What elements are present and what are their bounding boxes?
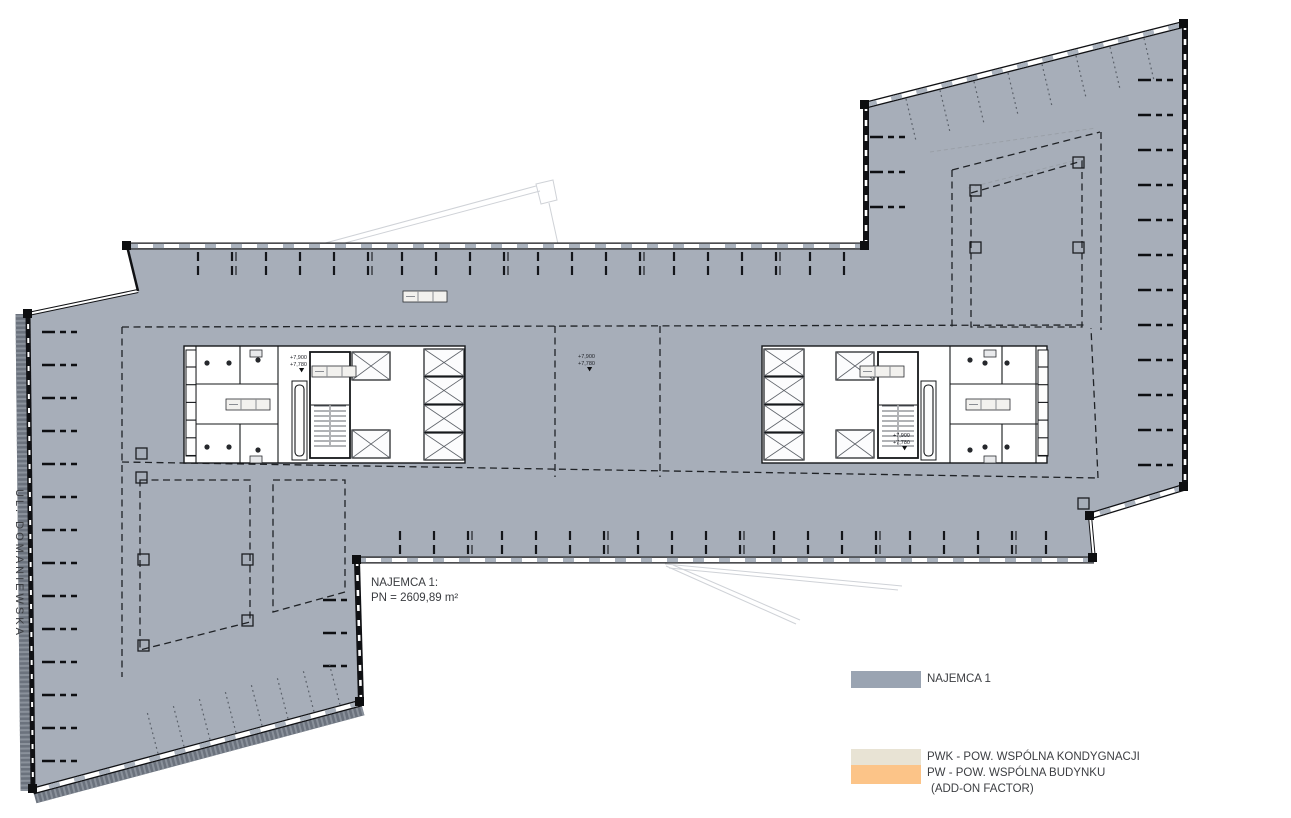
level-upper: +7,900 [893, 433, 910, 439]
sink [250, 456, 262, 463]
wall-cap [1085, 511, 1094, 520]
floor-plan-page: +7,900 +7,780 +7,900 +7,780 +7,900 +7,78… [0, 0, 1291, 818]
sink [984, 350, 996, 357]
level-lower: +7,780 [290, 362, 307, 368]
level-upper: +7,900 [578, 354, 595, 360]
level-lower: +7,780 [578, 361, 595, 367]
wc-fixture [967, 357, 972, 362]
wall-cap [1179, 482, 1188, 491]
wall-cap [352, 555, 361, 564]
legend-label-line2: (ADD-ON FACTOR) [927, 781, 1105, 797]
wc-fixture [255, 357, 260, 362]
wc-fixture [982, 444, 987, 449]
tenant-note-line2: PN = 2609,89 m² [371, 592, 458, 604]
wc-fixture [226, 360, 231, 365]
legend-swatch-pw [851, 765, 921, 784]
street-label: UL. DOMANIEWSKA [13, 489, 25, 638]
legend-item-najemca-1: NAJEMCA 1 [851, 671, 991, 688]
wc-fixture [204, 360, 209, 365]
legend-label-line1: PW - POW. WSPÓLNA BUDYNKU [927, 767, 1105, 779]
duct-shaft [186, 350, 196, 456]
legend-swatch-pwk [851, 749, 921, 765]
tenant-note-line1: NAJEMCA 1: [371, 577, 438, 589]
legend-item-pw: PW - POW. WSPÓLNA BUDYNKU (ADD-ON FACTOR… [851, 765, 1105, 797]
level-upper: +7,900 [290, 355, 307, 361]
wc-fixture [204, 444, 209, 449]
wc-fixture [255, 447, 260, 452]
legend-label: PW - POW. WSPÓLNA BUDYNKU (ADD-ON FACTOR… [927, 765, 1105, 797]
wall-cap [122, 241, 131, 250]
wall-cap [28, 784, 37, 793]
wc-fixture [967, 447, 972, 452]
wall-cap [860, 241, 869, 250]
wall-cap [860, 100, 869, 109]
wc-fixture [226, 444, 231, 449]
sink [250, 350, 262, 357]
legend-swatch-najemca-1 [851, 671, 921, 688]
wall-cap [355, 697, 364, 706]
legend-item-pwk: PWK - POW. WSPÓLNA KONDYGNACJI [851, 749, 1140, 765]
sink [984, 456, 996, 463]
legend-label: PWK - POW. WSPÓLNA KONDYGNACJI [927, 749, 1140, 765]
floor-plan-canvas: +7,900 +7,780 +7,900 +7,780 +7,900 +7,78… [0, 0, 1291, 818]
level-lower: +7,780 [893, 440, 910, 446]
legend-label: NAJEMCA 1 [927, 671, 991, 687]
wall-cap [23, 309, 32, 318]
wc-fixture [1004, 444, 1009, 449]
wall-cap [1088, 553, 1097, 562]
wc-fixture [1004, 360, 1009, 365]
wc-fixture [982, 360, 987, 365]
wall-cap [1179, 19, 1188, 28]
duct-shaft [1038, 350, 1048, 456]
